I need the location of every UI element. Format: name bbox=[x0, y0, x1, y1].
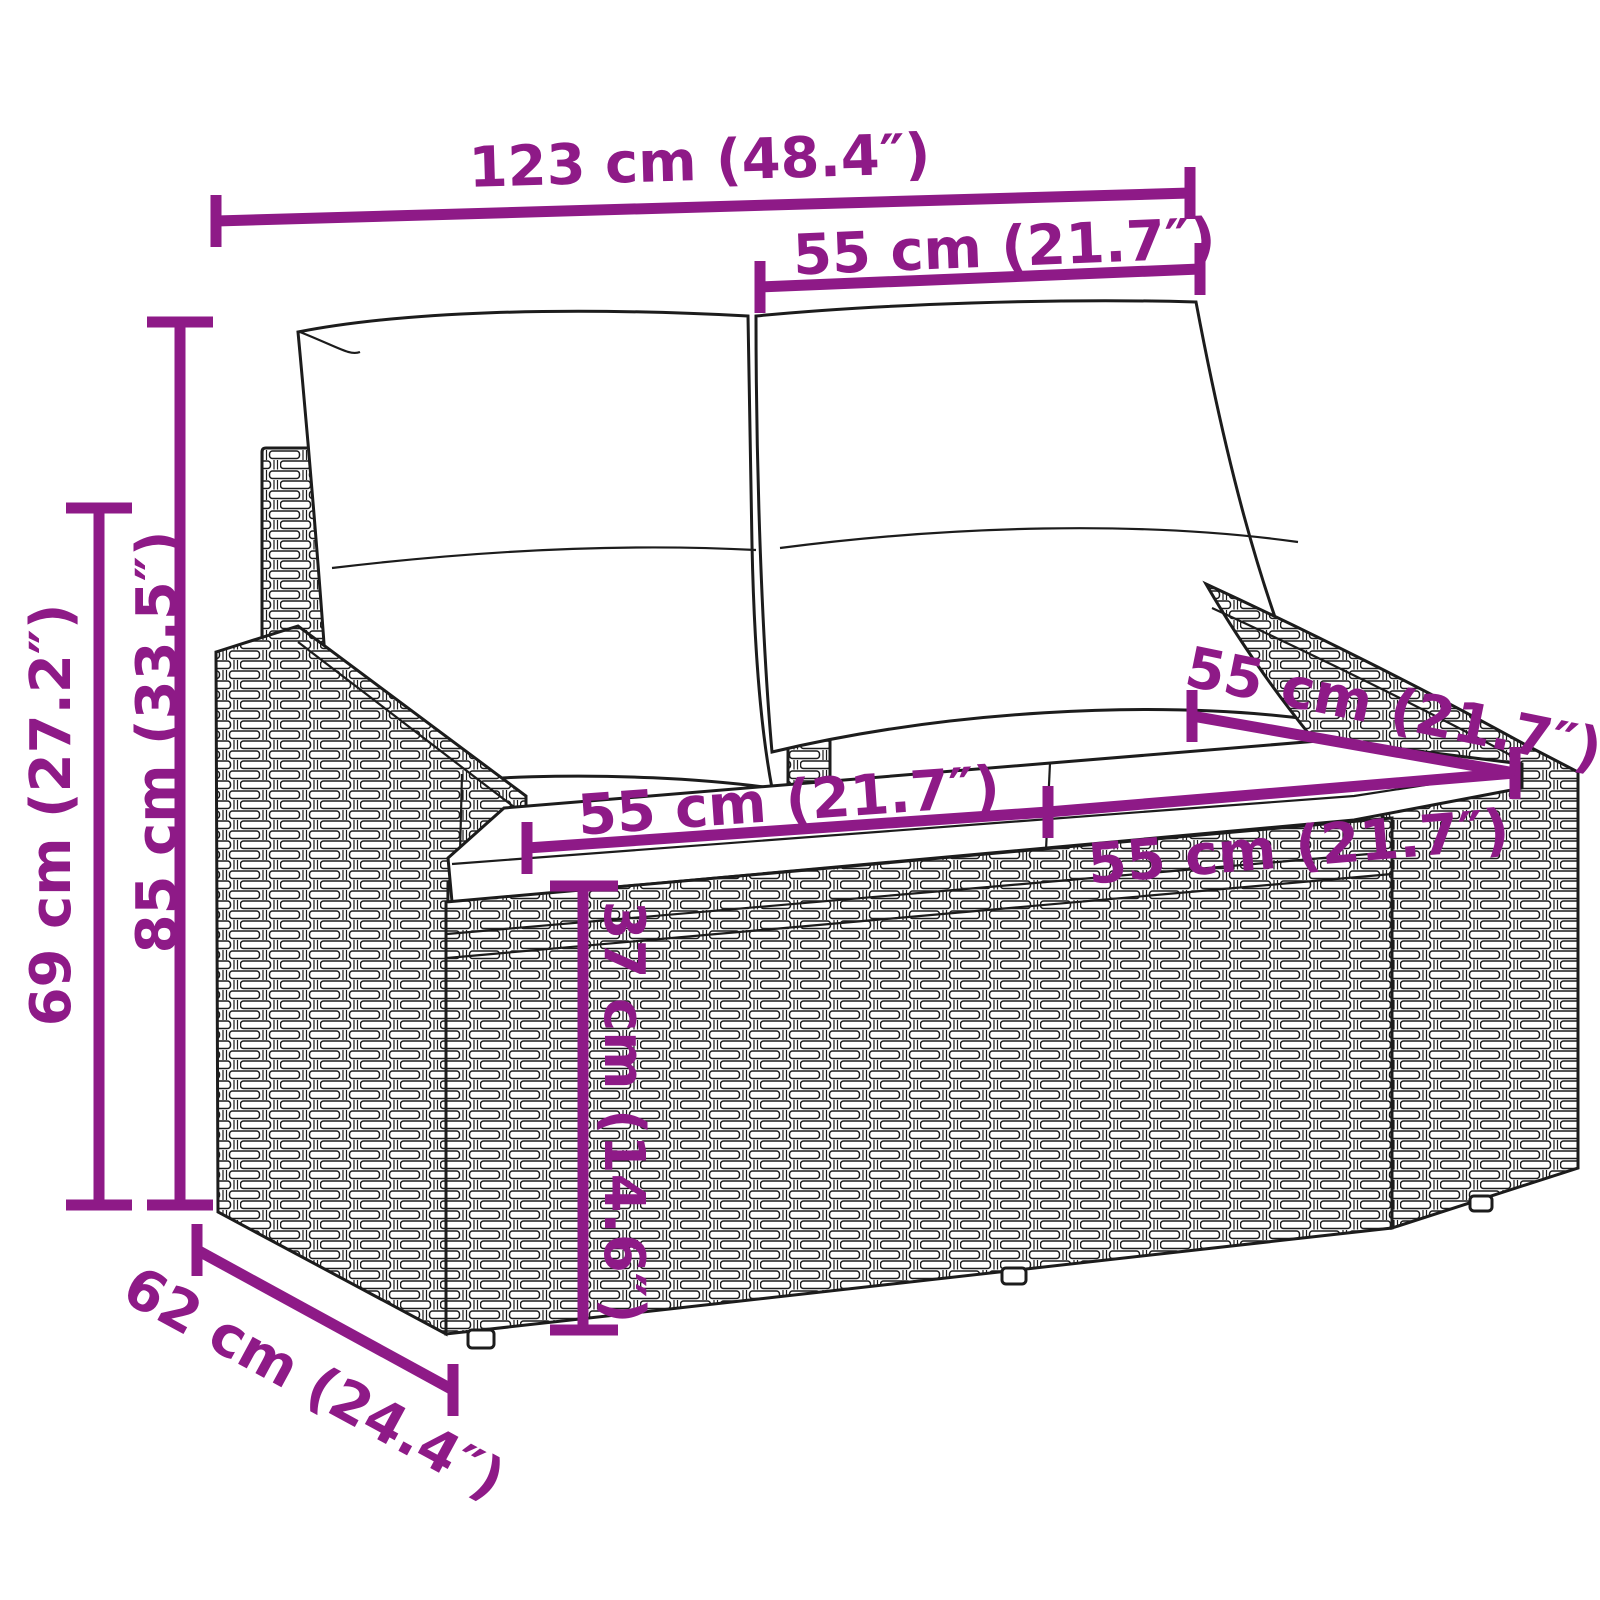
foot-right bbox=[1470, 1196, 1492, 1211]
dimension-diagram-canvas: 123 cm (48.4″) 55 cm (21.7″) 85 cm (33.5… bbox=[0, 0, 1600, 1600]
dim-height-total-label: 85 cm (33.5″) bbox=[125, 531, 190, 954]
product-dimension-diagram: 123 cm (48.4″) 55 cm (21.7″) 85 cm (33.5… bbox=[0, 0, 1600, 1600]
dim-overall-width-label: 123 cm (48.4″) bbox=[468, 122, 932, 201]
dim-seat-height-label: 37 cm (14.6″) bbox=[591, 901, 656, 1324]
foot-left bbox=[468, 1330, 494, 1348]
dim-backrest-width: 55 cm (21.7″) bbox=[760, 207, 1217, 313]
dim-height-total: 85 cm (33.5″) bbox=[125, 322, 213, 1205]
dim-height-armrest-label: 69 cm (27.2″) bbox=[19, 604, 84, 1027]
foot-center bbox=[1002, 1268, 1026, 1284]
dim-height-armrest: 69 cm (27.2″) bbox=[19, 508, 132, 1205]
